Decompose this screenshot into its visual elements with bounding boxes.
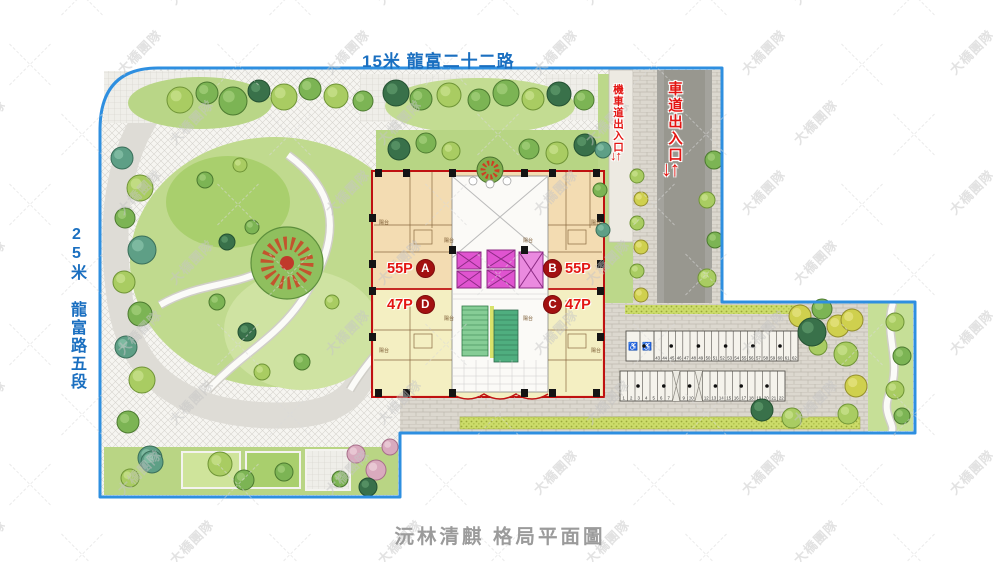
tree [522, 88, 544, 110]
tree [324, 84, 348, 108]
stall-number: 43 [655, 355, 660, 360]
stall-number: 54 [734, 355, 739, 360]
tree [275, 463, 293, 481]
unit-b-size: 55P [565, 261, 591, 277]
tree [233, 158, 247, 172]
stall-number: 14 [719, 395, 724, 400]
tree [111, 147, 133, 169]
tree [886, 381, 904, 399]
balcony-scallops [452, 394, 548, 399]
tree [634, 192, 648, 206]
stall-number: 45 [670, 355, 675, 360]
stall-number: 55 [742, 355, 747, 360]
tree [196, 82, 218, 104]
hedge-strip [625, 305, 800, 314]
balcony-label: 陽台 [523, 315, 533, 322]
tree [634, 240, 648, 254]
stall-number: 61 [785, 355, 790, 360]
tree [388, 138, 410, 160]
tree [209, 294, 225, 310]
unit-c-label: C 47P [543, 295, 591, 314]
tree [383, 80, 409, 106]
tree [630, 216, 644, 230]
tree [698, 269, 716, 287]
tree [574, 134, 596, 156]
tree [630, 264, 644, 278]
tree [115, 336, 137, 358]
tree [128, 302, 152, 326]
unit-c-size: 47P [565, 297, 591, 313]
stall-number: 22 [779, 395, 784, 400]
tree [332, 471, 348, 487]
motorcycle-entrance-arrows: ↓↑ [610, 148, 621, 163]
unit-d-size: 47P [387, 297, 413, 313]
tree [595, 142, 611, 158]
unit-d-badge: D [416, 295, 435, 314]
tree [468, 89, 490, 111]
unit-c-badge: C [543, 295, 562, 314]
tree [416, 133, 436, 153]
tree [208, 452, 232, 476]
tree [294, 354, 310, 370]
parking-row: ♿♿43444546474849505152535455565758596061… [626, 331, 798, 361]
tree [705, 151, 723, 169]
site-plan-graphic: ♿♿43444546474849505152535455565758596061… [0, 0, 1000, 562]
stall-number: 17 [741, 395, 746, 400]
unit-b-label: B 55P [543, 259, 591, 278]
tree [547, 82, 571, 106]
accessible-parking-icon: ♿ [628, 341, 638, 351]
building [369, 157, 604, 399]
tree [128, 236, 156, 264]
tree [845, 375, 867, 397]
tree [359, 478, 377, 496]
unit-b-badge: B [543, 259, 562, 278]
tree [197, 172, 213, 188]
stall-number: 57 [756, 355, 761, 360]
tree [442, 142, 460, 160]
flower-bed [251, 227, 323, 299]
tree [238, 323, 256, 341]
tree [841, 309, 863, 331]
tree [325, 295, 339, 309]
stall-number: 52 [720, 355, 725, 360]
tree [798, 318, 826, 346]
stall-number: 13 [711, 395, 716, 400]
tree [699, 192, 715, 208]
tree [886, 313, 904, 331]
road-label-top: 15米 龍富二十二路 [362, 47, 515, 72]
tree [167, 87, 193, 113]
tree [634, 288, 648, 302]
parking-row: 12345679101213141516171819202122 [620, 371, 785, 401]
tree [141, 451, 163, 473]
motorcycle-entrance-label: 機車道出入口 [611, 84, 626, 153]
balcony-label: 陽台 [379, 219, 389, 226]
tree [894, 408, 910, 424]
site-plan-page: ♿♿43444546474849505152535455565758596061… [0, 0, 1000, 562]
tree [353, 91, 373, 111]
stall-number: 46 [677, 355, 682, 360]
tree [410, 88, 432, 110]
tree [115, 208, 135, 228]
tree [117, 411, 139, 433]
stairs [462, 306, 518, 362]
balcony-label: 陽台 [444, 237, 454, 244]
tree [382, 439, 398, 455]
tree [271, 84, 297, 110]
road-label-left: 25米 龍富路五段 [64, 226, 88, 391]
tree [630, 169, 644, 183]
stall-number: 16 [734, 395, 739, 400]
tree [834, 342, 858, 366]
stall-number: 15 [726, 395, 731, 400]
car-entrance-arrows: ↓↑ [661, 158, 678, 182]
tree [493, 80, 519, 106]
balcony-label: 陽台 [444, 315, 454, 322]
unit-a-badge: A [416, 259, 435, 278]
stall-number: 49 [698, 355, 703, 360]
stall-number: 58 [763, 355, 768, 360]
stall-number: 53 [727, 355, 732, 360]
tree [299, 78, 321, 100]
tree [893, 347, 911, 365]
stall-number: 62 [792, 355, 797, 360]
stall-number: 50 [706, 355, 711, 360]
stall-number: 12 [704, 395, 709, 400]
tree [519, 139, 539, 159]
stall-number: 48 [691, 355, 696, 360]
balcony-label: 陽台 [523, 237, 533, 244]
stall-number: 59 [770, 355, 775, 360]
tree [219, 87, 247, 115]
stall-number: 21 [771, 395, 776, 400]
unit-a-size: 55P [387, 261, 413, 277]
balcony-label: 陽台 [591, 219, 601, 226]
tree [782, 408, 802, 428]
balcony-label: 陽台 [591, 347, 601, 354]
tree [219, 234, 235, 250]
balcony-label: 陽台 [379, 347, 389, 354]
tree [838, 404, 858, 424]
tree [751, 399, 773, 421]
tree [574, 90, 594, 110]
stall-number: 60 [778, 355, 783, 360]
tree [113, 271, 135, 293]
unit-a-label: 55P A [387, 259, 435, 278]
stall-number: 44 [662, 355, 667, 360]
tree [593, 183, 607, 197]
tree [234, 470, 254, 490]
car-entrance-label: 車道出入口 [664, 81, 685, 164]
stall-number: 18 [749, 395, 754, 400]
stall-number: 47 [684, 355, 689, 360]
tree [254, 364, 270, 380]
tree [366, 460, 386, 480]
tree [121, 469, 139, 487]
tree [248, 80, 270, 102]
tree [127, 175, 153, 201]
plan-caption: 沅林清麒 格局平面圖 [395, 520, 606, 549]
stall-number: 10 [689, 395, 694, 400]
tree [546, 142, 568, 164]
tree [129, 367, 155, 393]
tree [347, 445, 365, 463]
stall-number: 56 [749, 355, 754, 360]
tree [437, 83, 461, 107]
stall-number: 51 [713, 355, 718, 360]
tree [245, 220, 259, 234]
unit-d-label: 47P D [387, 295, 435, 314]
